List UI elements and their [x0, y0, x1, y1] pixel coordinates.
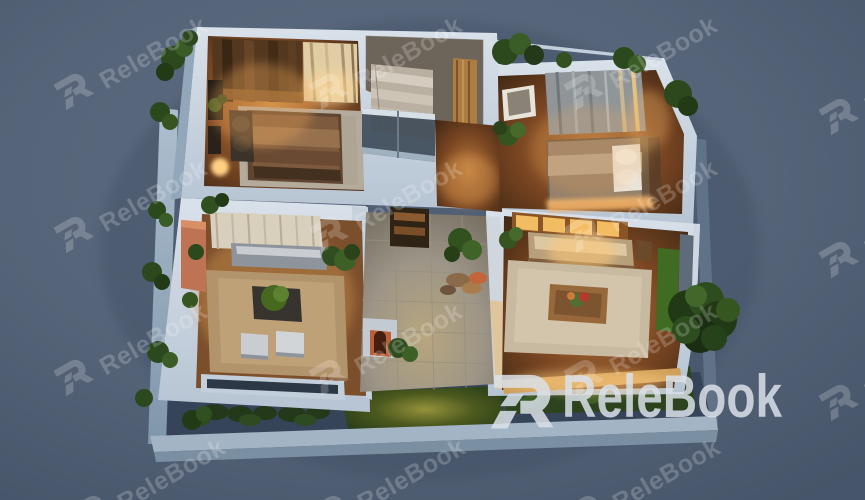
svg-text:ReleBook: ReleBook [562, 363, 782, 430]
